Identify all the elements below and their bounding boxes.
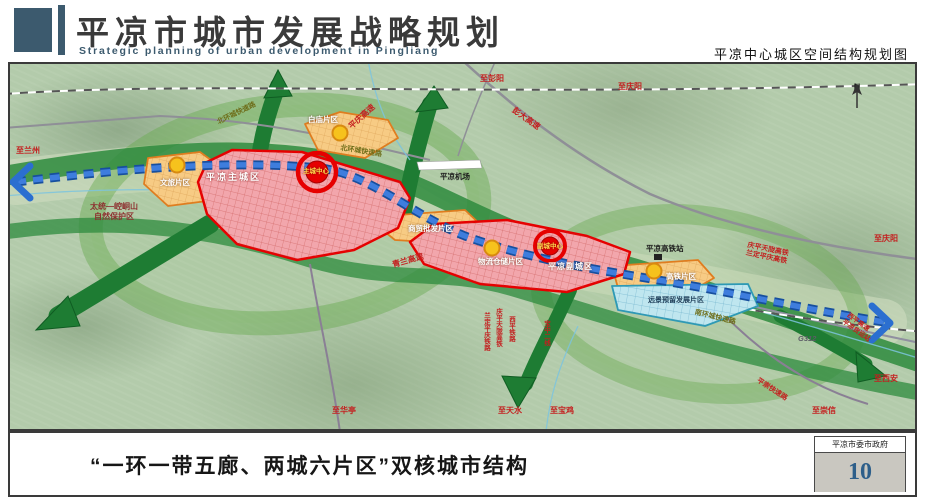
page-number: 10 xyxy=(815,453,905,492)
direction-chongxin: 至崇信 xyxy=(812,406,836,416)
direction-huating: 至华亭 xyxy=(332,406,356,416)
header-accent-square xyxy=(14,8,52,52)
road-label-g312: G312 xyxy=(798,334,816,343)
planning-document-page: 平凉市城市发展战略规划 Strategic planning of urban … xyxy=(0,0,925,500)
direction-xian: 至西安 xyxy=(874,374,898,384)
rail-label-xiping: 西平铁路 xyxy=(507,316,514,342)
government-box: 平凉市委市政府 10 xyxy=(814,436,906,492)
label-sub-center: 副城中心 xyxy=(537,243,563,251)
zone-label-reserve: 远景预留发展片区 xyxy=(648,297,704,305)
nature-reserve-line2: 自然保护区 xyxy=(68,212,160,222)
label-main-center: 主城中心 xyxy=(303,168,329,176)
zone-label-shangmao: 商贸批发片区 xyxy=(408,224,453,233)
rail-label-qingping: 庆平天陇高铁 xyxy=(494,308,501,347)
direction-lanzhou: 至兰州 xyxy=(16,146,40,156)
planning-map: 至兰州 太统—崆峒山 自然保护区 文旅片区 平凉主城区 主城中心 白庙片区 平凉… xyxy=(8,62,917,431)
direction-tianshui: 至天水 xyxy=(498,406,522,416)
zone-label-main-city: 平凉主城区 xyxy=(206,172,261,183)
map-caption: 平凉中心城区空间结构规划图 xyxy=(714,44,909,63)
hsr-station-marker xyxy=(654,254,662,260)
zone-label-baimiao: 白庙片区 xyxy=(308,115,338,124)
direction-pengyang: 至彭阳 xyxy=(480,74,504,84)
nature-reserve-line1: 太统—崆峒山 xyxy=(68,202,160,212)
nature-reserve-label: 太统—崆峒山 自然保护区 xyxy=(68,202,160,221)
label-hsr-station: 平凉高铁站 xyxy=(646,244,684,253)
map-graphics xyxy=(10,64,917,431)
header-accent-bar xyxy=(58,5,65,55)
compass-north-icon xyxy=(842,82,872,110)
airport-runway xyxy=(417,160,482,170)
page-footer: “一环一带五廊、两城六片区”双核城市结构 平凉市委市政府 10 xyxy=(8,431,917,497)
zone-label-wenlv: 文旅片区 xyxy=(160,178,190,187)
rail-label-landing: 兰定平庆铁路 xyxy=(482,312,489,351)
page-subtitle: Strategic planning of urban development … xyxy=(79,45,439,57)
rail-label-baozhong: 宝中二线 xyxy=(542,320,549,346)
zone-label-wuliu: 物流仓储片区 xyxy=(478,257,523,266)
compass: N xyxy=(842,82,872,122)
label-airport: 平凉机场 xyxy=(440,172,470,181)
structure-slogan: “一环一带五廊、两城六片区”双核城市结构 xyxy=(90,450,529,480)
direction-qingyang-north: 至庆阳 xyxy=(618,82,642,92)
zone-label-gaotie: 高铁片区 xyxy=(666,272,696,281)
government-label: 平凉市委市政府 xyxy=(815,437,905,453)
zone-label-sub-city: 平凉副城区 xyxy=(548,262,593,272)
direction-qingyang-east: 至庆阳 xyxy=(874,234,898,244)
direction-baoji: 至宝鸡 xyxy=(550,406,574,416)
